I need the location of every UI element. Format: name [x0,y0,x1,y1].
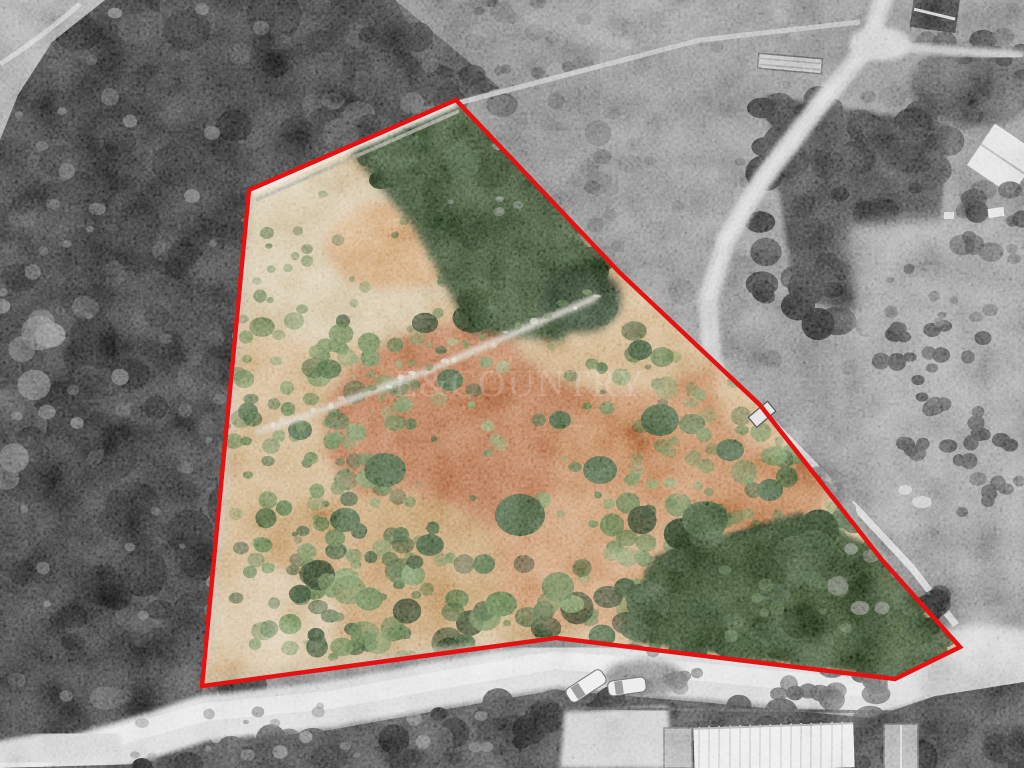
svg-text:E&COUNTRY: E&COUNTRY [394,363,646,405]
